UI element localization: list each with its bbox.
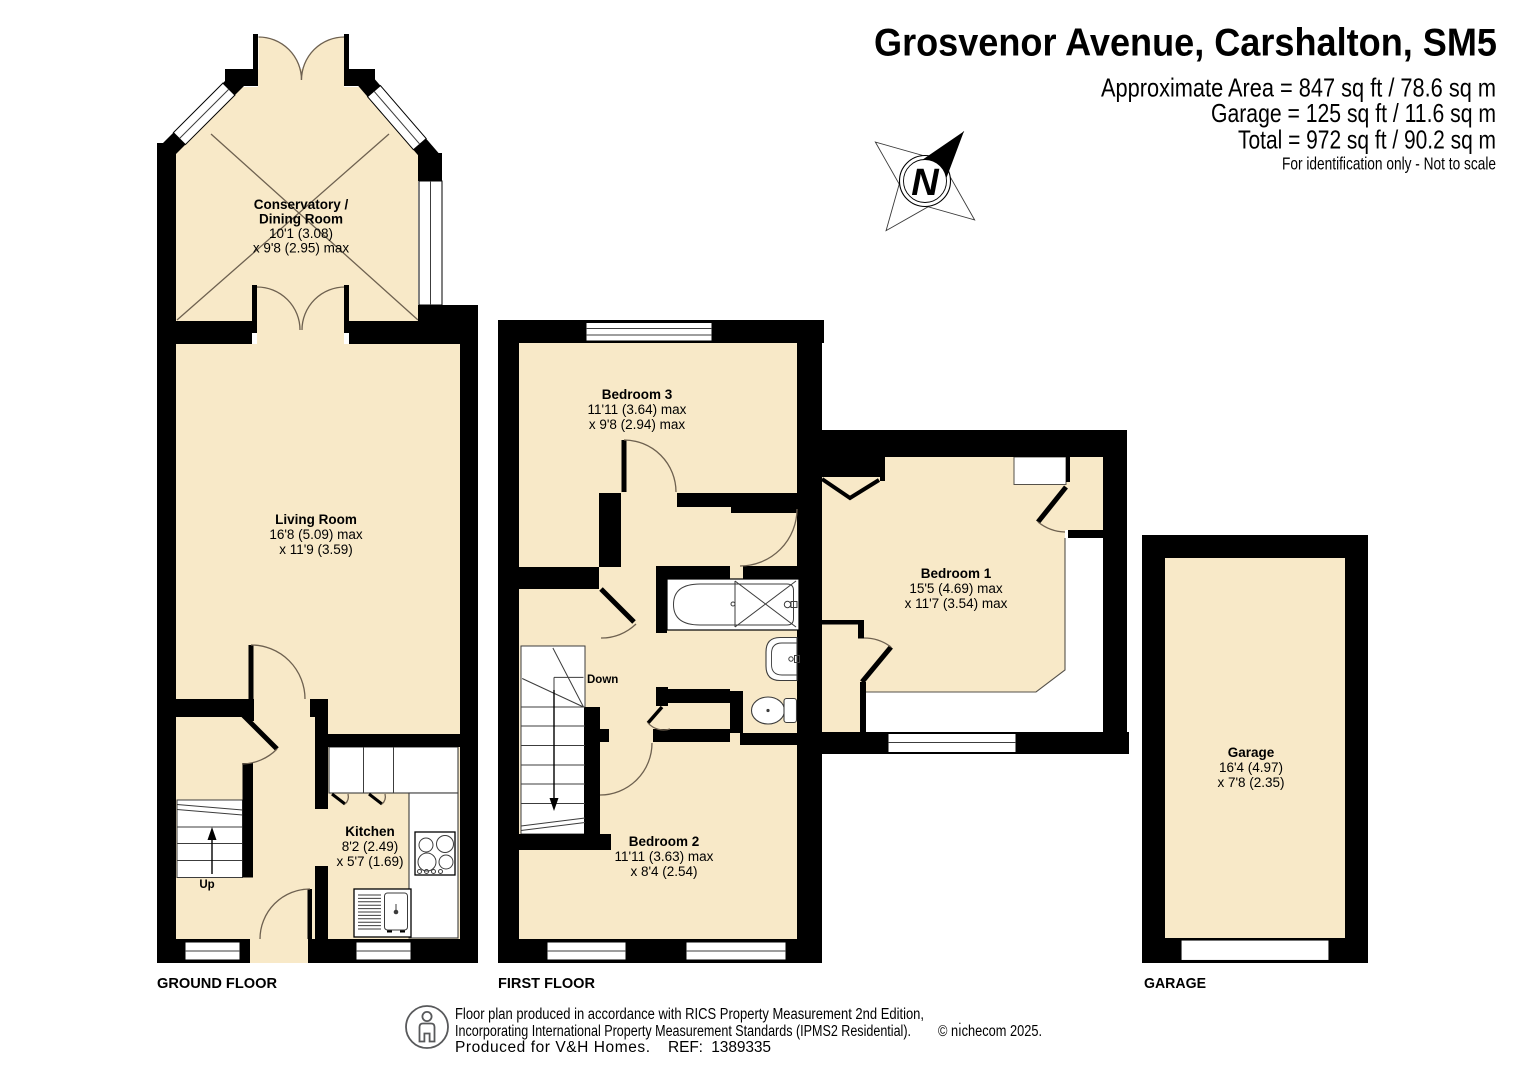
svg-text:For identification only - Not: For identification only - Not to scale xyxy=(1282,154,1496,174)
svg-text:x 11'7 (3.54) max: x 11'7 (3.54) max xyxy=(905,596,1008,611)
svg-text:REF: 1389335: REF: 1389335 xyxy=(668,1039,771,1056)
svg-text:Grosvenor Avenue, Carshalton,: Grosvenor Avenue, Carshalton, SM5 xyxy=(874,22,1497,65)
svg-text:Conservatory /: Conservatory / xyxy=(254,197,349,212)
svg-text:Bedroom 1: Bedroom 1 xyxy=(921,566,992,581)
svg-text:11'11 (3.64) max: 11'11 (3.64) max xyxy=(588,402,687,417)
svg-text:x 11'9 (3.59): x 11'9 (3.59) xyxy=(279,542,353,557)
svg-text:Kitchen: Kitchen xyxy=(345,824,395,839)
svg-text:8'2 (2.49): 8'2 (2.49) xyxy=(342,839,399,854)
svg-text:Floor plan produced in accorda: Floor plan produced in accordance with R… xyxy=(455,1006,924,1023)
svg-text:x 9'8 (2.94) max: x 9'8 (2.94) max xyxy=(589,417,686,432)
svg-text:10'1 (3.08): 10'1 (3.08) xyxy=(269,226,333,241)
svg-text:Up: Up xyxy=(199,879,214,891)
svg-text:Down: Down xyxy=(587,674,618,686)
svg-text:GROUND FLOOR: GROUND FLOOR xyxy=(157,975,277,992)
svg-text:16'8 (5.09) max: 16'8 (5.09) max xyxy=(269,527,363,542)
svg-text:Total = 972 sq ft / 90.2 sq m: Total = 972 sq ft / 90.2 sq m xyxy=(1238,124,1496,154)
svg-text:© nı̇checom 2025.: © nı̇checom 2025. xyxy=(938,1023,1042,1040)
svg-text:Garage: Garage xyxy=(1228,745,1275,760)
svg-text:Bedroom 3: Bedroom 3 xyxy=(602,387,673,402)
svg-text:Bedroom 2: Bedroom 2 xyxy=(629,834,700,849)
svg-text:11'11 (3.63) max: 11'11 (3.63) max xyxy=(615,849,714,864)
svg-text:Incorporating International Pr: Incorporating International Property Mea… xyxy=(455,1023,911,1040)
svg-text:FIRST FLOOR: FIRST FLOOR xyxy=(498,975,595,992)
svg-text:x 7'8 (2.35): x 7'8 (2.35) xyxy=(1217,775,1284,790)
svg-text:x 9'8 (2.95) max: x 9'8 (2.95) max xyxy=(253,241,350,256)
svg-text:Produced for V&H Homes.: Produced for V&H Homes. xyxy=(455,1039,650,1056)
svg-text:GARAGE: GARAGE xyxy=(1144,975,1206,992)
svg-text:N: N xyxy=(911,162,940,204)
svg-text:Living Room: Living Room xyxy=(275,512,357,527)
svg-text:x 8'4 (2.54): x 8'4 (2.54) xyxy=(630,864,697,879)
svg-text:15'5 (4.69) max: 15'5 (4.69) max xyxy=(909,581,1003,596)
svg-text:Dining Room: Dining Room xyxy=(259,212,343,227)
svg-text:Garage = 125 sq ft / 11.6 sq m: Garage = 125 sq ft / 11.6 sq m xyxy=(1211,98,1496,128)
svg-text:16'4 (4.97): 16'4 (4.97) xyxy=(1219,760,1283,775)
svg-text:x 5'7 (1.69): x 5'7 (1.69) xyxy=(336,854,403,869)
